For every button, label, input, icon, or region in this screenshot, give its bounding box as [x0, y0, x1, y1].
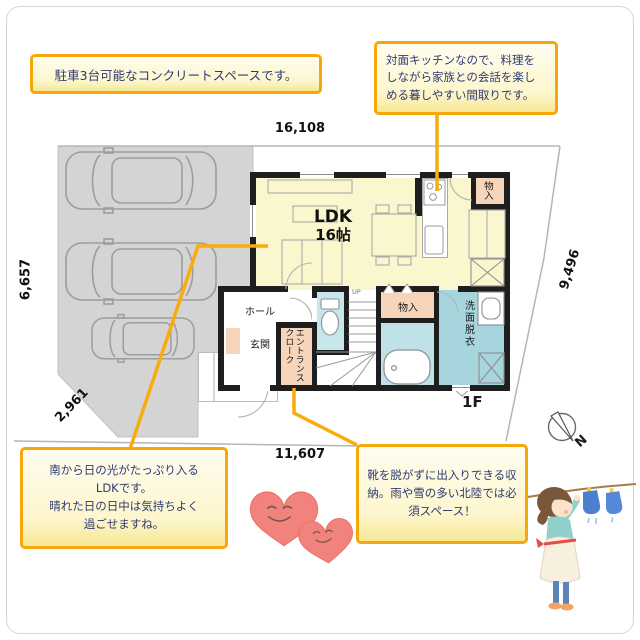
callout-kitchen-line: しながら家族との会話を楽し	[386, 69, 535, 86]
callout-cloak-line: 納。雨や雪の多い北陸では必	[367, 485, 517, 503]
callout-cloak-line: 須スペース！	[408, 503, 476, 521]
hall-label: ホール	[228, 303, 292, 318]
bathtub	[384, 350, 430, 384]
callout-parking-text: 駐車3台可能なコンクリートスペースです。	[55, 65, 298, 84]
closet-mid-label: 物入	[381, 299, 435, 314]
toilet-tank	[321, 299, 339, 309]
kitchen-sink	[425, 226, 443, 254]
callout-kitchen: 対面キッチンなので、料理を しながら家族との会話を楽し める暮しやすい間取りです…	[374, 41, 558, 115]
callout-ldk-line: 晴れた日の日中は気持ちよく	[49, 498, 199, 516]
entrance-door-opening	[240, 385, 270, 391]
window	[300, 172, 334, 178]
ldk-name: LDK	[290, 208, 376, 227]
window	[386, 172, 420, 178]
callout-ldk-line: 南から日の光がたっぷり入る	[49, 462, 199, 480]
callout-kitchen-line: める暮しやすい間取りです。	[386, 87, 534, 104]
dimension-bottom: 11,607	[262, 447, 338, 462]
toilet-bowl	[322, 311, 339, 335]
sofa	[282, 240, 342, 284]
floor-label: 1F	[462, 393, 483, 411]
callout-cloak-line: 靴を脱がずに出入りできる収	[367, 467, 516, 485]
tv-board	[268, 180, 352, 193]
callout-parking: 駐車3台可能なコンクリートスペースです。	[30, 54, 322, 94]
callout-ldk-line: LDKです。	[96, 480, 152, 498]
window	[452, 172, 468, 178]
entrance-cloak-label: エントランスクローク	[283, 328, 304, 385]
callout-cloak: 靴を脱がずに出入りできる収 納。雨や雪の多い北陸では必 須スペース！	[356, 444, 528, 544]
callout-ldk: 南から日の光がたっぷり入る LDKです。 晴れた日の日中は気持ちよく 過ごせます…	[20, 447, 228, 549]
ldk-size: 16帖	[290, 227, 376, 244]
closet-top-label: 物入	[481, 181, 492, 206]
stove	[424, 180, 445, 205]
dining-table	[372, 214, 416, 256]
floorplan-flyer: LDK 16帖 ホール 玄関 エントランスクローク 物入 物入 洗面脱衣 UP …	[0, 0, 640, 640]
washroom-label: 洗面脱衣	[462, 300, 474, 366]
stairs-up-label: UP	[352, 288, 361, 296]
door-opening	[452, 385, 470, 391]
door-opening	[312, 298, 317, 322]
dimension-left: 6,657	[19, 248, 34, 312]
ldk-label: LDK 16帖	[290, 208, 376, 244]
callout-kitchen-line: 対面キッチンなので、料理を	[386, 52, 535, 69]
window	[250, 205, 256, 237]
callout-ldk-line: 過ごせますね。	[84, 516, 165, 534]
dimension-top: 16,108	[255, 121, 345, 136]
